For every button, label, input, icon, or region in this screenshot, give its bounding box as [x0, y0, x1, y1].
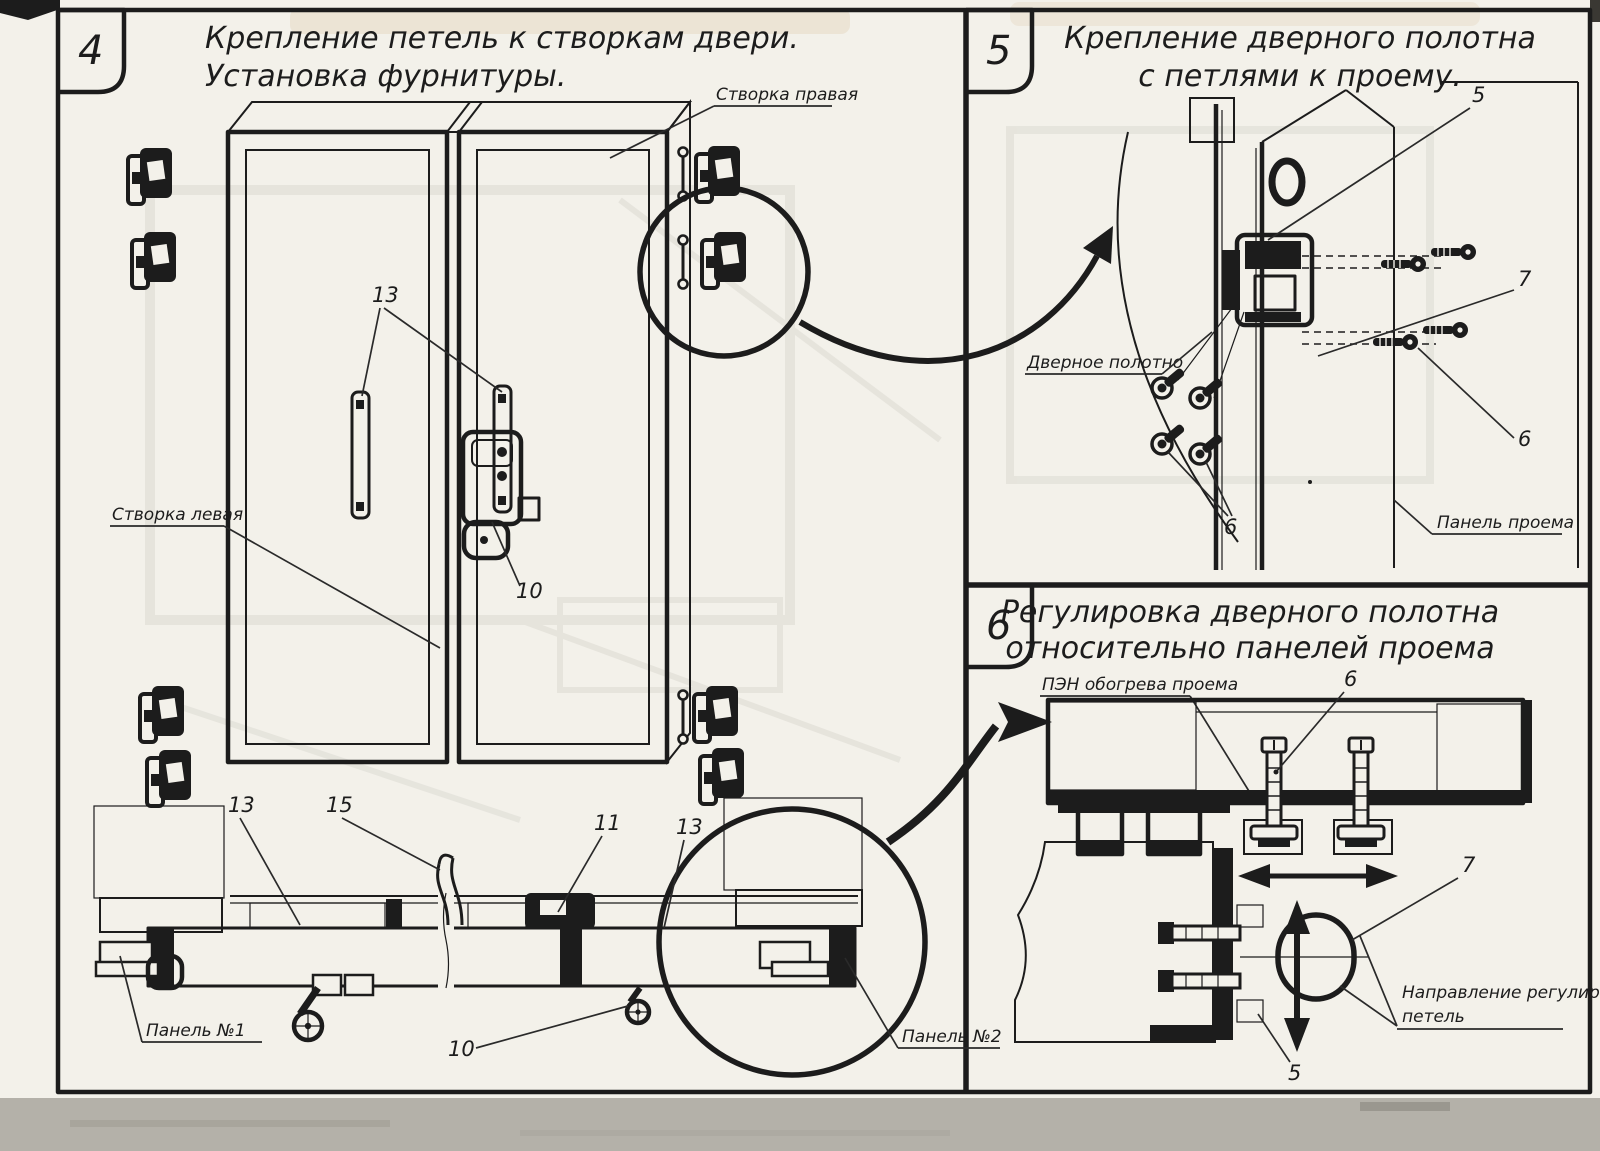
panel5-title-line2: с петлями к проему. [1138, 59, 1462, 94]
hinge-icon [147, 750, 191, 806]
wall-screw [1158, 922, 1240, 944]
scan-streak [520, 1130, 950, 1136]
panel4-title-line1: Крепление петель к створкам двери. [205, 21, 799, 56]
callout-7-loop: 7 [1462, 853, 1476, 877]
panel5-number: 5 [986, 28, 1011, 74]
callout-5-top: 5 [1472, 83, 1485, 107]
panel4-title-line2: Установка фурнитуры. [205, 59, 566, 94]
label-door-leaf: Дверное полотно [1026, 353, 1183, 373]
callout-13-hinge-plates: 13 [372, 283, 399, 307]
callout-11-lock: 11 [594, 811, 621, 835]
callout-5-bottom: 5 [1288, 1061, 1301, 1085]
panel5-title-line1: Крепление дверного полотна [1064, 21, 1536, 56]
callout-13-section-left: 13 [228, 793, 255, 817]
label-left-leaf: Створка левая [112, 505, 243, 525]
label-panel2: Панель №2 [902, 1027, 1002, 1047]
callout-10-latch: 10 [516, 579, 543, 603]
hinge-icon [140, 686, 184, 742]
scan-streak [1360, 1102, 1450, 1111]
frame-bar [1213, 848, 1233, 1040]
drawing-canvas: 4 Крепление петель к створкам двери. Уст… [0, 0, 1600, 1151]
label-direction-line1: Направление регулировки [1402, 983, 1600, 1003]
callout-13-section-right: 13 [676, 815, 703, 839]
hinge-icon [700, 748, 744, 804]
hinge-icon [132, 232, 176, 288]
hinge-icon [694, 686, 738, 742]
callout-10-roller: 10 [448, 1037, 475, 1061]
panel4-number: 4 [78, 28, 103, 74]
scanned-sheet: 4 Крепление петель к створкам двери. Уст… [0, 0, 1600, 1151]
hinge-icon [702, 232, 746, 288]
label-opening-panel: Панель проема [1437, 513, 1574, 533]
label-heater: ПЭН обогрева проема [1042, 675, 1238, 695]
callout-15-handle: 15 [326, 793, 353, 817]
label-panel1: Панель №1 [146, 1021, 246, 1041]
wall-screw [1158, 970, 1240, 992]
paper-background [0, 0, 1600, 1151]
hinge-icon [128, 148, 172, 204]
scan-streak [70, 1120, 390, 1127]
label-right-leaf: Створка правая [716, 85, 858, 105]
panel6-title-line1: Регулировка дверного полотна [1001, 595, 1499, 630]
label-direction-line2: петель [1402, 1007, 1465, 1027]
callout-6-bolt: 6 [1344, 667, 1357, 691]
callout-6-right: 6 [1518, 427, 1531, 451]
callout-6-left: 6 [1224, 515, 1237, 539]
callout-7-middle: 7 [1518, 267, 1532, 291]
panel6-title-line2: относительно панелей проема [1005, 631, 1494, 666]
